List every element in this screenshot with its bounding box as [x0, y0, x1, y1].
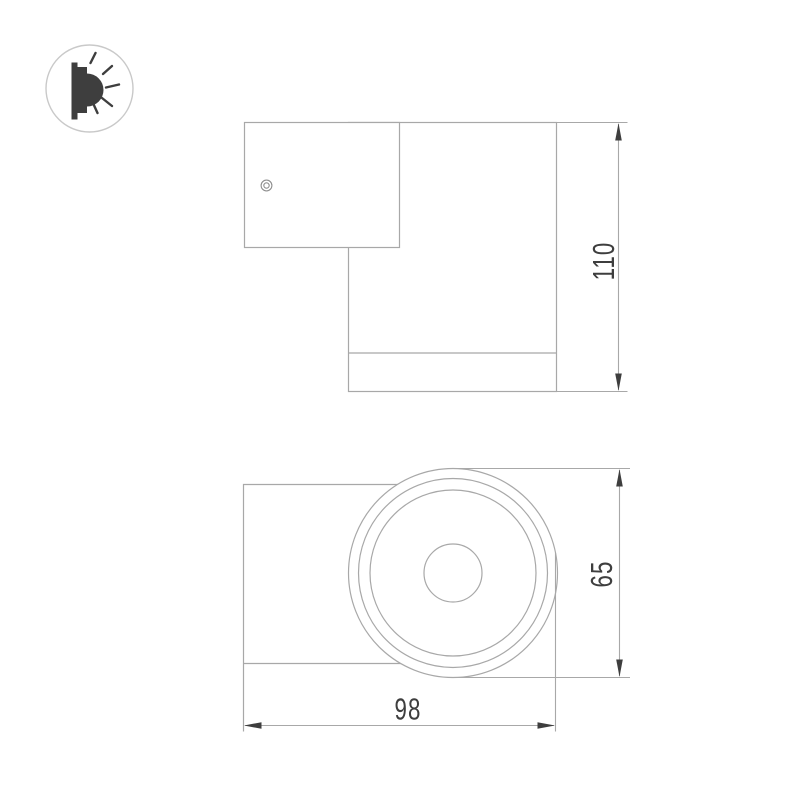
- dimension-height-label: 110: [586, 242, 620, 281]
- dimension-diameter-label: 65: [584, 561, 618, 588]
- arrow-up-icon: [616, 469, 623, 487]
- side-view-mount-plate: [245, 123, 400, 248]
- front-view-outer-circle: [349, 469, 558, 678]
- arrow-right-icon: [538, 722, 556, 729]
- arrow-left-icon: [244, 722, 262, 729]
- technical-drawing-page: 110 65 98: [0, 0, 800, 800]
- dimension-drawing: 110 65 98: [0, 0, 800, 800]
- arrow-down-icon: [615, 374, 622, 392]
- side-view: [245, 123, 557, 392]
- dimension-depth-label: 98: [395, 692, 422, 726]
- arrow-up-icon: [615, 123, 622, 141]
- wall-lamp-light-beam-icon: [46, 45, 133, 132]
- icon-lamp-body: [72, 67, 88, 113]
- arrow-down-icon: [616, 660, 623, 678]
